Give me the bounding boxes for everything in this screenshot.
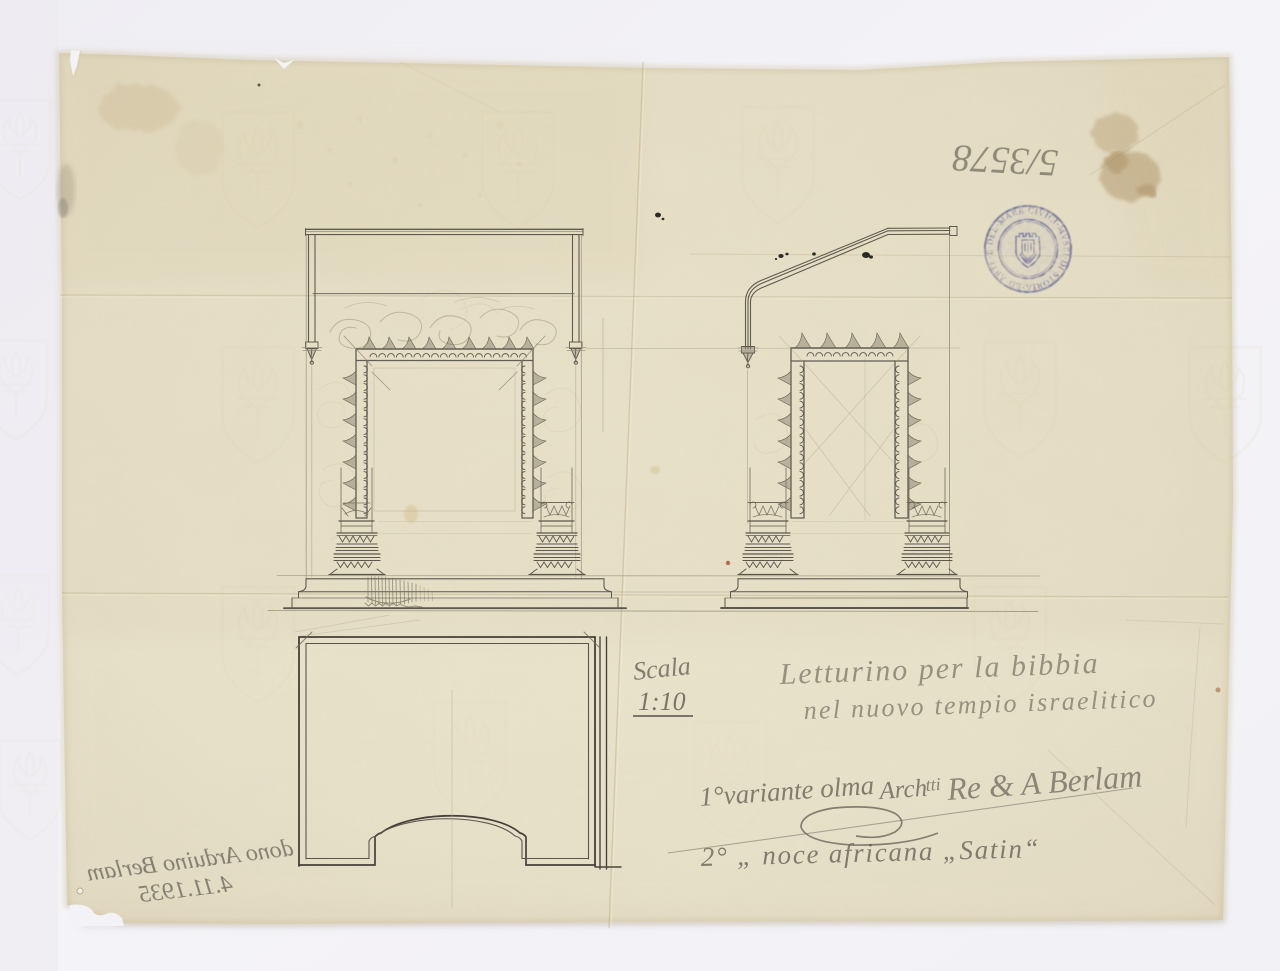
svg-text:Scala: Scala — [632, 651, 692, 686]
svg-text:Arch: Arch — [877, 775, 928, 805]
svg-text:5/3578: 5/3578 — [952, 136, 1060, 183]
svg-text:1:10: 1:10 — [638, 687, 686, 716]
svg-text:tti: tti — [925, 774, 941, 795]
